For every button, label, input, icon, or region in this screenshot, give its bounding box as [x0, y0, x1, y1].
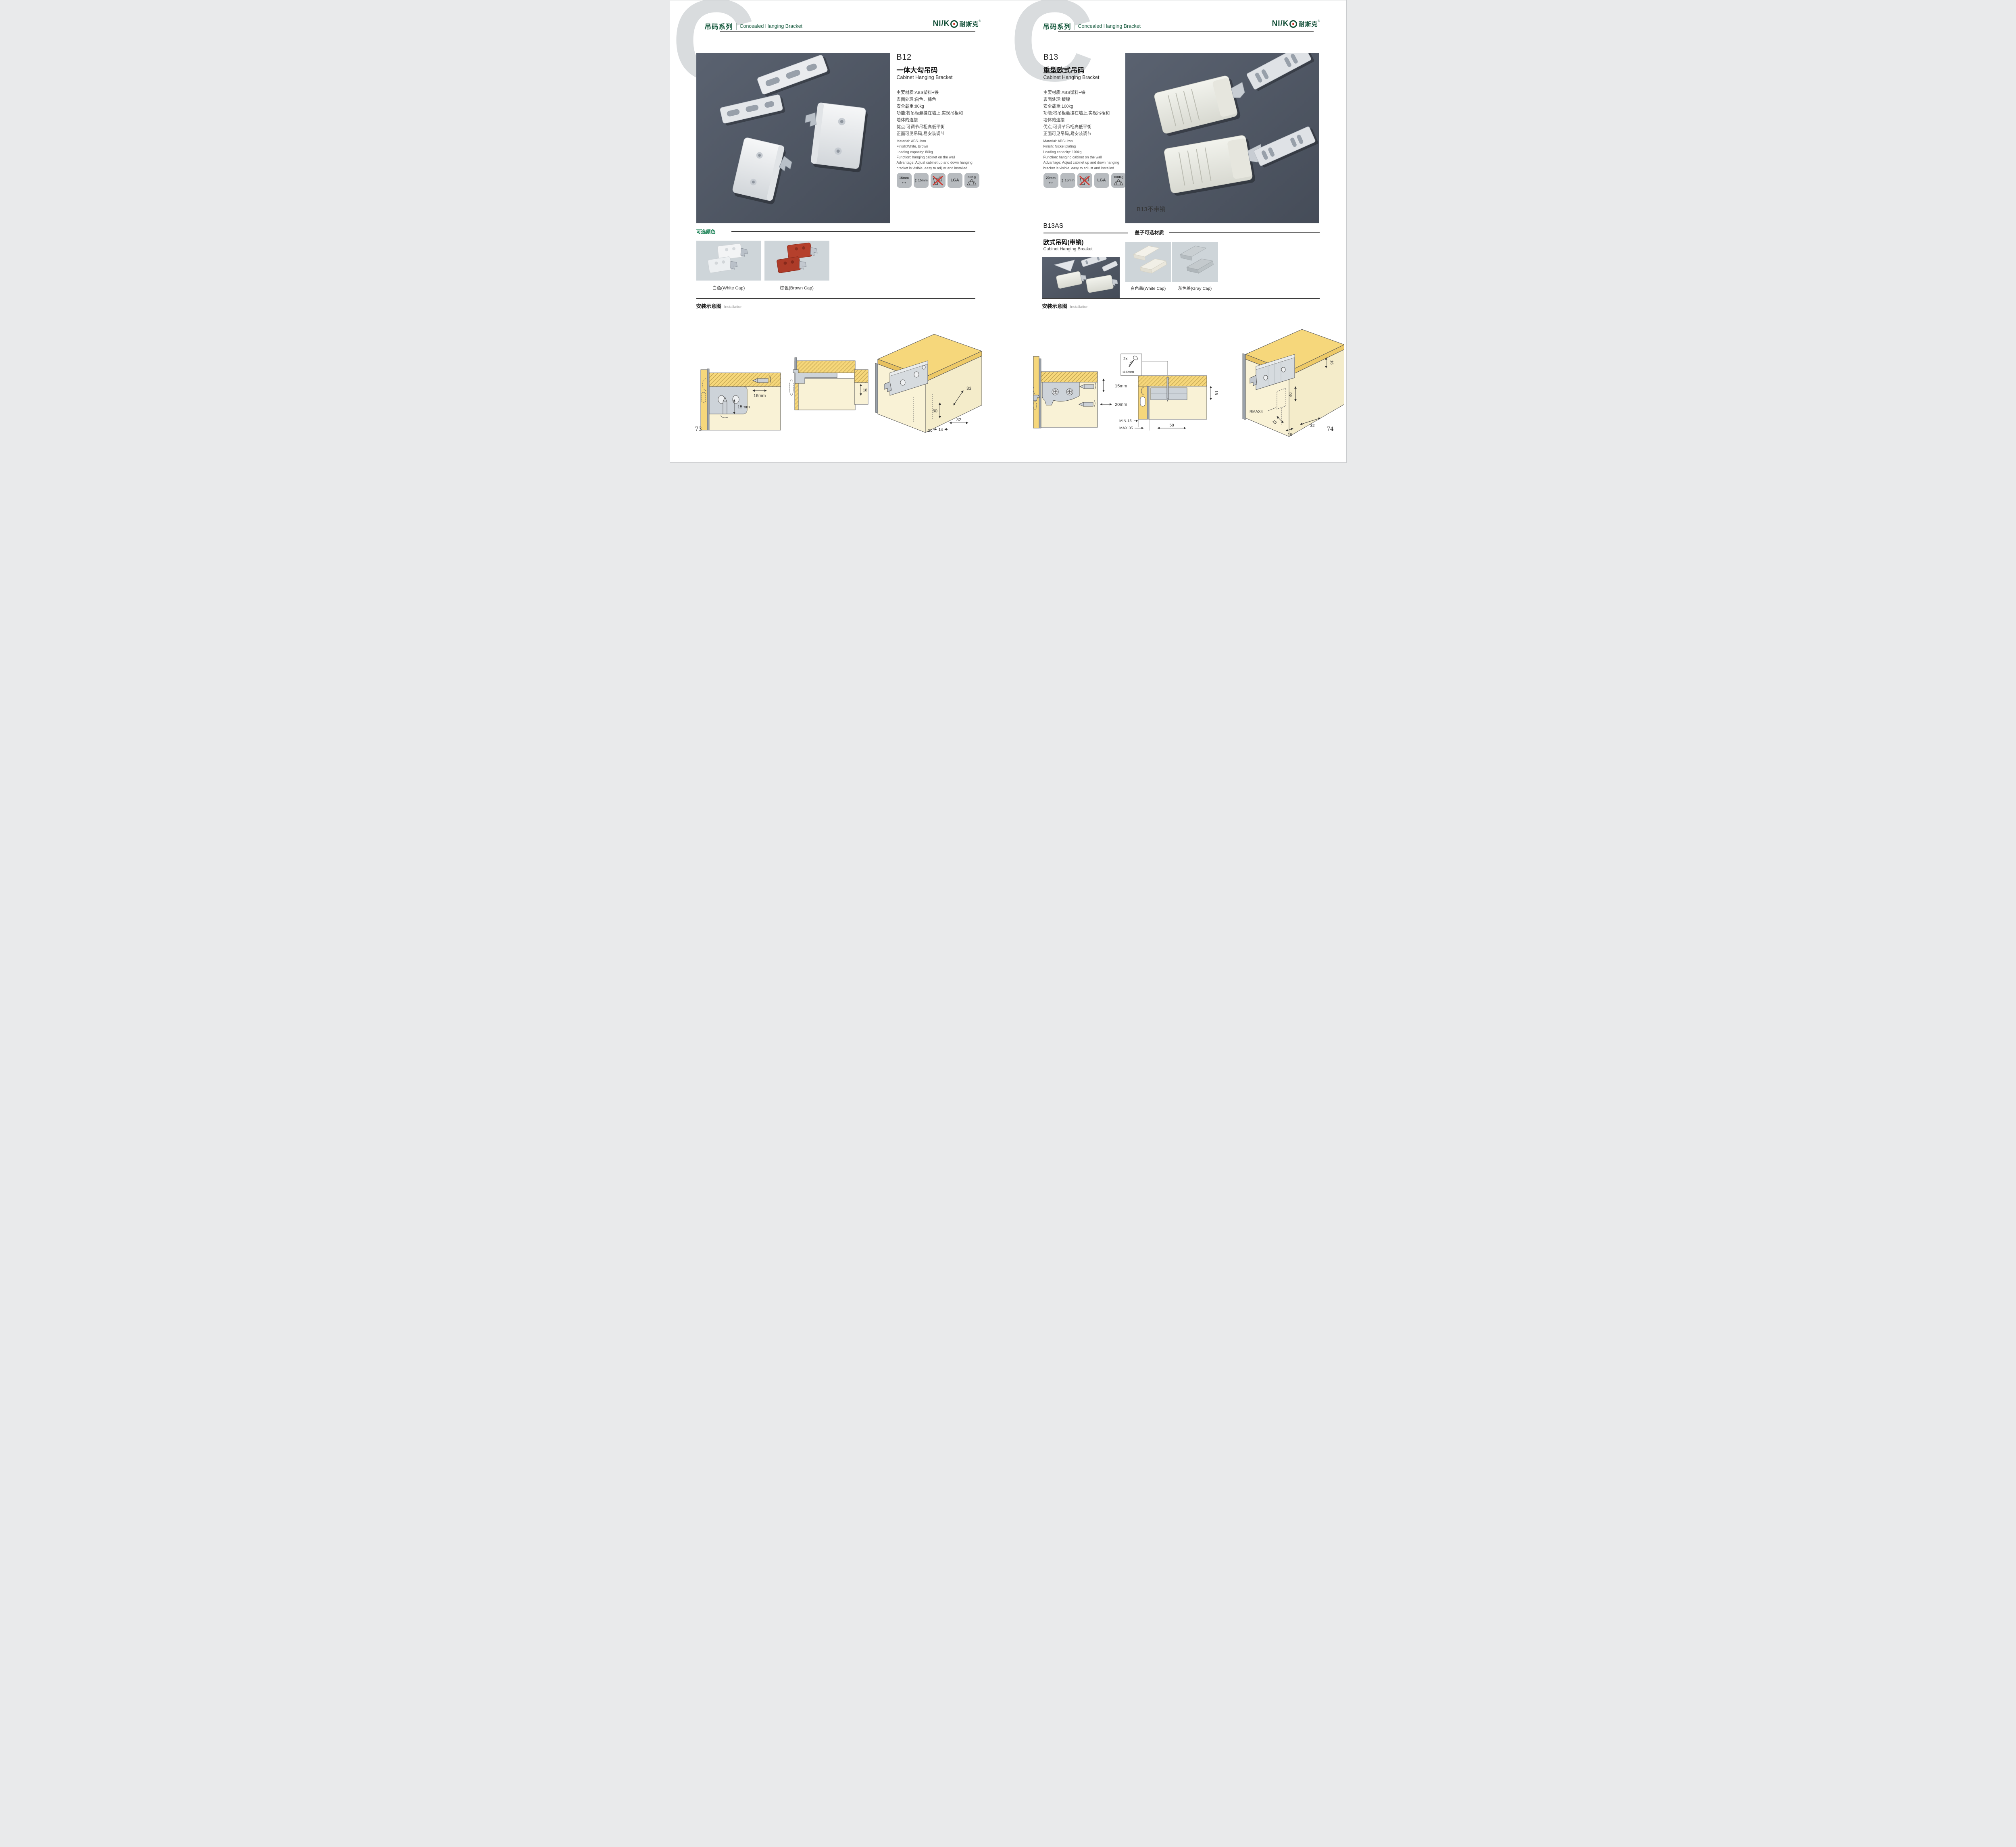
product-photo-b13: B13不带销: [1125, 53, 1319, 223]
product-specs-cn: 主要材质:ABS塑料+铁 表面处理:白色、棕色 安全载重:80kg 功能:将吊柜…: [897, 89, 963, 137]
logo-text: NI/K: [933, 19, 950, 28]
install-diagram-section: 16mm 15mm: [700, 350, 781, 431]
feature-icons: 20mm ↔ ↕ 15mm LGA: [1043, 173, 1126, 188]
header-rule: [1058, 31, 1314, 32]
page-edge-line: [1332, 0, 1332, 462]
icon-panel-width: 20mm ↔: [1043, 173, 1058, 188]
install-diagram-wallplate: 2x Φ4mm 18 MIN.15: [1119, 345, 1222, 432]
cap-card-gray: [1172, 242, 1218, 282]
installation-heading: 安装示意图 Installation: [1042, 302, 1089, 310]
icon-panel-depth: ↕ 15mm: [914, 173, 929, 188]
svg-text:2x: 2x: [1123, 357, 1128, 361]
svg-text:18: 18: [1214, 390, 1218, 395]
svg-text:20: 20: [928, 428, 933, 433]
page-right: C 吊码系列 Concealed Hanging Bracket NI/K 耐斯…: [1008, 0, 1346, 462]
registered-mark: ®: [979, 20, 981, 23]
sub-product-name-en: Cabinet Hanging Brcaket: [1043, 247, 1093, 252]
install-diagram-3d: 18 33 30 32 20 14: [854, 322, 983, 437]
svg-text:32: 32: [956, 418, 961, 422]
product-name-en: Cabinet Hanging Bracket: [897, 75, 953, 80]
product-code: B13: [1043, 53, 1058, 62]
product-code: B12: [897, 53, 912, 62]
page-header: 吊码系列 Concealed Hanging Bracket: [705, 21, 803, 31]
page-number: 73: [695, 426, 702, 433]
cap-card-white: [1125, 242, 1171, 282]
installation-heading: 安装示意图 Installation: [696, 302, 743, 310]
sub-product-code: B13AS: [1043, 223, 1064, 230]
header-rule: [720, 31, 975, 32]
caps-section-title: 盖子可选材质: [1135, 229, 1164, 236]
icon-panel-width: 16mm ↔: [897, 173, 912, 188]
brown-bracket-render: [764, 241, 829, 281]
product-photo-b12: [696, 53, 890, 223]
feature-icons: 16mm ↔ ↕ 15mm LGA: [897, 173, 979, 188]
svg-text:14: 14: [938, 428, 943, 432]
product-specs-en: Material: ABS+iron Finish: Nickel platin…: [1043, 139, 1119, 171]
product-photo-b13as: [1042, 257, 1120, 298]
svg-text:30: 30: [932, 409, 937, 414]
logo-cn-text: 耐斯克: [960, 20, 979, 28]
logo-target-icon: [1289, 20, 1297, 28]
logo-cn-text: 耐斯克: [1299, 20, 1318, 28]
registered-mark: ®: [1318, 20, 1320, 23]
phillips-screw: [1052, 389, 1058, 395]
section-divider: [1042, 298, 1320, 299]
svg-text:58: 58: [1169, 423, 1174, 428]
sub-product-rule: [1043, 233, 1128, 233]
load-icon: [1113, 179, 1124, 185]
logo-text: NI/K: [1272, 19, 1289, 28]
install-diagram-side: [789, 350, 856, 411]
no-drill-icon: [1079, 175, 1091, 186]
photo-caption: B13不带销: [1137, 206, 1166, 213]
svg-text:40: 40: [1289, 392, 1293, 397]
header-divider: [1075, 23, 1075, 30]
icon-lga-cert: LGA: [1094, 173, 1109, 188]
icon-panel-depth: ↕ 15mm: [1060, 173, 1075, 188]
sub-product-name-cn: 欧式吊码(带销): [1043, 238, 1084, 246]
page-left: C 吊码系列 Concealed Hanging Bracket NI/K 耐斯…: [670, 0, 1008, 462]
color-label-white: 白色(White Cap): [696, 285, 761, 291]
horizontal-arrow-icon: ↔: [1048, 180, 1054, 185]
svg-text:Φ4mm: Φ4mm: [1123, 370, 1134, 374]
product-name-cn: 一体大勾吊码: [897, 64, 938, 75]
gray-cap-render: [1172, 242, 1218, 282]
no-drill-icon: [932, 175, 944, 186]
icon-load-capacity: 100Kg: [1111, 173, 1126, 188]
svg-text:16mm: 16mm: [753, 393, 766, 398]
caps-section-rule: [1169, 232, 1320, 233]
icon-no-drill: [931, 173, 946, 188]
section-divider: [696, 298, 975, 299]
product-specs-en: Material: ABS+iron Finish:White, Brown L…: [897, 139, 973, 171]
product-name-cn: 重型欧式吊码: [1043, 64, 1085, 75]
svg-text:MAX.35: MAX.35: [1119, 426, 1133, 431]
header-divider: [736, 23, 737, 30]
nisko-logo: NI/K 耐斯克 ®: [1272, 19, 1320, 28]
cap-label-white: 白色盖(White Cap): [1125, 285, 1171, 291]
series-title-cn: 吊码系列: [705, 21, 733, 31]
load-icon: [966, 179, 977, 185]
watermark-letter-c: C: [1010, 0, 1094, 99]
logo-target-icon: [950, 20, 958, 28]
color-card-brown: [764, 241, 829, 281]
product-specs-cn: 主要材质:ABS塑料+铁 表面处理:镀镍 安全载重:100kg 功能:将吊柜悬挂…: [1043, 89, 1110, 137]
colors-section-rule: [731, 231, 975, 232]
svg-text:15mm: 15mm: [737, 405, 750, 410]
vertical-arrow-icon: ↕: [914, 177, 917, 183]
svg-text:32: 32: [1310, 424, 1315, 428]
color-label-brown: 棕色(Brown Cap): [764, 285, 829, 291]
icon-load-capacity: 80Kg: [964, 173, 979, 188]
white-bracket-render: [696, 241, 761, 281]
color-card-white: [696, 241, 761, 281]
logo-red-dot: [953, 23, 955, 25]
logo-red-dot: [1292, 23, 1294, 25]
cap-label-gray: 灰色盖(Gray Cap): [1172, 285, 1218, 291]
phillips-screw: [1066, 389, 1073, 395]
product-name-en: Cabinet Hanging Bracket: [1043, 75, 1100, 80]
svg-text:MIN.15: MIN.15: [1119, 419, 1132, 423]
vertical-arrow-icon: ↕: [1061, 177, 1064, 183]
series-title-cn: 吊码系列: [1043, 21, 1071, 31]
svg-text:33: 33: [966, 386, 971, 391]
catalog-spread: C 吊码系列 Concealed Hanging Bracket NI/K 耐斯…: [670, 0, 1347, 463]
page-header: 吊码系列 Concealed Hanging Bracket: [1043, 21, 1141, 31]
white-cap-render: [1125, 242, 1171, 282]
nisko-logo: NI/K 耐斯克 ®: [933, 19, 981, 28]
icon-lga-cert: LGA: [948, 173, 962, 188]
icon-no-drill: [1077, 173, 1092, 188]
colors-section-title: 可选颜色: [696, 228, 716, 235]
install-diagram-3d: 16 40 RMAX4 19 18 32: [1229, 319, 1344, 438]
horizontal-arrow-icon: ↔: [901, 180, 907, 185]
svg-text:18: 18: [863, 388, 868, 393]
series-title-en: Concealed Hanging Bracket: [740, 23, 803, 29]
svg-text:18: 18: [1287, 433, 1292, 437]
page-number: 74: [1327, 426, 1334, 433]
series-title-en: Concealed Hanging Bracket: [1078, 23, 1141, 29]
svg-text:RMAX4: RMAX4: [1250, 410, 1263, 414]
